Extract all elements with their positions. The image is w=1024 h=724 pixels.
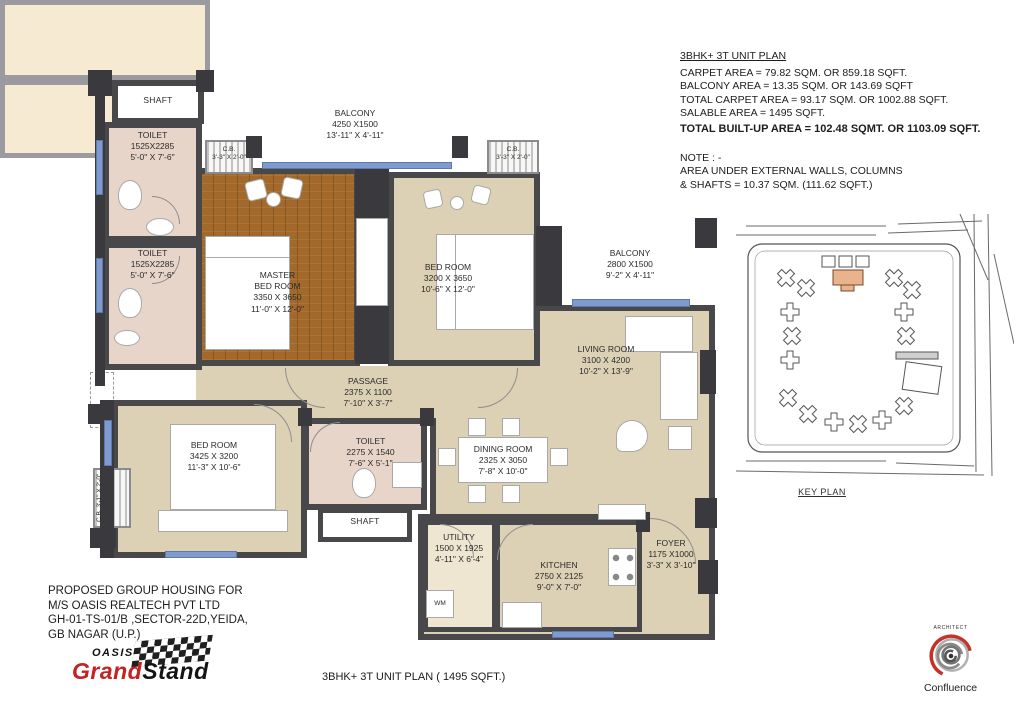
project-description: PROPOSED GROUP HOUSING FOR M/S OASIS REA… [48,584,248,642]
foyer-shelf [598,504,646,520]
brand-grandstand-text: GrandStand [72,658,209,685]
dining-chair [502,418,520,436]
carpet-area-line: CARPET AREA = 79.82 SQM. OR 859.18 SQFT. [680,67,1024,80]
label-shaft-bottom: SHAFT [318,516,412,527]
sheet-caption: 3BHK+ 3T UNIT PLAN ( 1495 SQFT.) [322,671,505,683]
project-line: M/S OASIS REALTECH PVT LTD [48,599,248,614]
key-plan-label: KEY PLAN [772,487,872,497]
architect-name: Confluence [903,682,998,694]
label-toilet1: TOILET1525X22855'-0" X 7'-6" [105,130,200,164]
label-toilet3: TOILET2275 X 15407'-6" X 5'-1" [318,436,423,470]
basin-toilet2 [114,330,140,346]
salable-area-line: SALABLE AREA = 1495 SQFT. [680,107,1024,120]
window-toilet1 [96,140,103,195]
label-bedroom2: BED ROOM3200 X 365010'-6" X 12'-0" [392,262,504,296]
side-table [266,192,281,207]
stove [608,548,636,586]
slider-balcony1 [262,162,452,169]
label-cb1: C.B.3'-3" X 2'-0" [205,146,253,162]
wall-post [355,306,389,364]
label-cb2: C.B.3'-3" X 2'-0" [487,146,539,162]
total-carpet-area-line: TOTAL CARPET AREA = 93.17 SQM. OR 1002.8… [680,94,1024,107]
note-line: AREA UNDER EXTERNAL WALLS, COLUMNS [680,165,1024,178]
chair [280,176,304,200]
confluence-swirl-icon [926,631,976,681]
floor-plan-sheet: SHAFT TOILET1525X22855'-0" X 7'-6" TOILE… [0,0,1024,724]
area-statement: 3BHK+ 3T UNIT PLAN CARPET AREA = 79.82 S… [680,50,1024,192]
brand-grand: Grand [72,658,142,684]
label-balcony1: BALCONY4250 X150013'-11" X 4'-11" [255,108,455,142]
wardrobe [356,218,388,306]
lounge-chair [616,420,648,452]
dining-chair [502,485,520,503]
wall-column [536,226,562,306]
label-foyer: FOYER1175 X10003'-3" X 3'-10" [636,538,706,572]
wall-column [700,350,716,394]
project-line: PROPOSED GROUP HOUSING FOR [48,584,248,599]
label-passage: PASSAGE2375 X 11007'-10" X 3'-7" [312,376,424,410]
label-dining: DINING ROOM2325 X 30507'-8" X 10'-0" [452,444,554,478]
wc-toilet1 [118,180,142,210]
label-bedroom3: BED ROOM3425 X 320011'-3" X 10'-6" [158,440,270,474]
built-up-area-line: TOTAL BUILT-UP AREA = 102.48 SQMT. OR 11… [680,123,1024,136]
kitchen-sink [502,602,542,628]
label-kitchen: KITCHEN2750 X 21259'-0" X 7'-0" [506,560,612,594]
window-toilet2 [96,258,103,313]
label-living: LIVING ROOM3100 X 420010'-2" X 13'-9" [550,344,662,378]
wc-toilet3 [352,468,376,498]
wall-column [196,70,214,92]
unit-plan-title: 3BHK+ 3T UNIT PLAN [680,50,1024,63]
stool [668,426,692,450]
developer-logo: OASIS GrandStand [62,636,252,696]
slider-balcony2 [572,299,690,307]
dining-chair [468,418,486,436]
wall-column [298,408,312,426]
bench-bedroom3 [158,510,288,532]
window-bedroom3-bottom [165,551,237,558]
window-bedroom3-left [104,420,112,466]
bed-master-pillow [205,236,290,258]
label-balcony2: BALCONY2800 X15009'-2" X 4'-11" [562,248,698,282]
wall-post [355,162,389,218]
dining-chair [468,485,486,503]
project-line: GH-01-TS-01/B ,SECTOR-22D,YEIDA, [48,613,248,628]
chair [422,188,443,209]
label-master: MASTER BED ROOM3350 X 365011'-0" X 12'-0… [195,270,360,315]
label-cb3: C.B. 3'-1" X 2'-0" [96,470,128,526]
wall-column [695,498,717,528]
balcony-area-line: BALCONY AREA = 13.35 SQM. OR 143.69 SQFT [680,80,1024,93]
note-line: & SHAFTS = 10.37 SQM. (111.62 SQFT.) [680,179,1024,192]
note-title: NOTE : - [680,152,1024,165]
label-toilet2: TOILET1525X22855'-0" X 7'-6" [105,248,200,282]
wall-column [88,70,112,96]
side-table [450,196,464,210]
sofa-right [660,352,698,420]
wc-toilet2 [118,288,142,318]
room-balcony1 [0,0,210,80]
architect-logo: ARCHITECT Confluence [903,625,998,694]
label-shaft-top: SHAFT [112,95,204,106]
label-utility: UTILITY1500 X 19254'-11" X 6'-4" [424,532,494,566]
wall-column [420,408,434,426]
brand-stand: Stand [142,658,208,684]
wall-column [695,218,717,248]
key-plan-map [736,214,1014,482]
window-kitchen [552,631,614,638]
architect-label: ARCHITECT [903,625,998,631]
label-wm: WM [426,600,454,608]
